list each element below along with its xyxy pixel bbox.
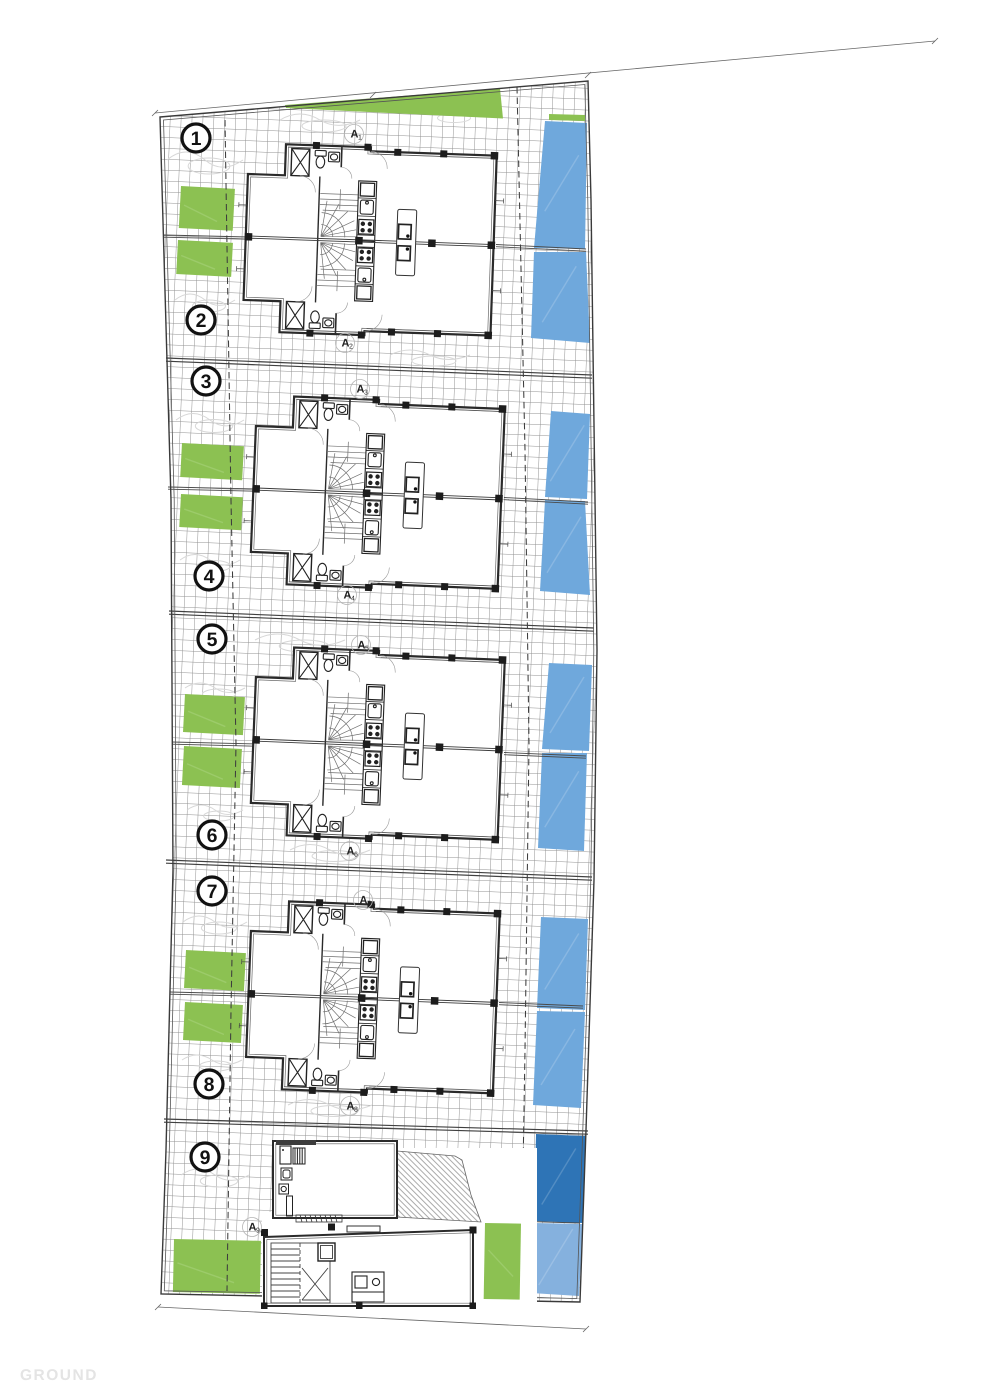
svg-text:8: 8 (354, 1107, 358, 1114)
svg-text:GROUND: GROUND (20, 1367, 98, 1384)
svg-text:3: 3 (201, 371, 212, 393)
svg-text:8: 8 (204, 1074, 215, 1096)
svg-text:1: 1 (358, 135, 362, 142)
svg-text:6: 6 (354, 852, 358, 859)
svg-text:6: 6 (207, 825, 218, 847)
svg-text:7: 7 (207, 881, 218, 903)
svg-text:4: 4 (351, 596, 355, 603)
svg-text:9: 9 (200, 1147, 211, 1169)
svg-text:1: 1 (191, 128, 202, 150)
svg-text:3: 3 (364, 390, 368, 397)
svg-text:4: 4 (204, 566, 215, 588)
svg-text:7: 7 (367, 901, 371, 908)
svg-text:2: 2 (349, 344, 353, 351)
svg-text:9: 9 (256, 1228, 260, 1235)
svg-text:5: 5 (365, 646, 369, 653)
svg-text:5: 5 (207, 629, 218, 651)
svg-text:2: 2 (196, 310, 207, 332)
